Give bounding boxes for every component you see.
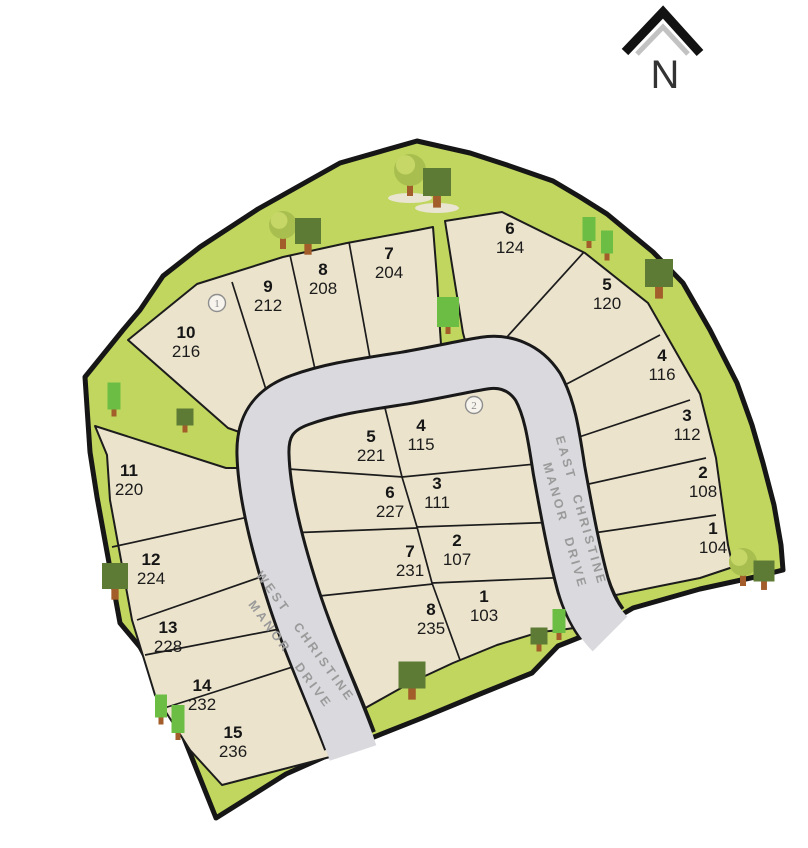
lot-address: 120 [593,294,621,313]
lot-address: 235 [417,619,445,638]
lot-address: 221 [357,446,385,465]
map-marker: 2 [466,397,483,414]
lot-address: 236 [219,742,247,761]
lot-address: 115 [407,435,434,454]
lot-number: 13 [159,618,178,637]
lot-address: 220 [115,480,143,499]
lot-number: 6 [505,219,514,238]
lot-number: 1 [708,519,717,538]
lot-address: 103 [470,606,498,625]
tree-icon [155,695,167,725]
map-marker-number: 1 [214,298,220,310]
lot-number: 3 [682,406,691,425]
lot-address: 228 [154,637,182,656]
lot-number: 12 [142,550,161,569]
lot-address: 227 [376,502,404,521]
lot-address: 107 [443,550,471,569]
lot-address: 204 [375,263,403,282]
lot-number: 4 [416,416,426,435]
map-marker: 1 [209,295,226,312]
lot-address: 208 [309,279,337,298]
lot-number: 1 [479,587,488,606]
north-arrow-outer-chevron-icon [625,12,700,53]
lot-number: 7 [384,244,393,263]
lot-number: 14 [193,676,212,695]
lot-number: 5 [366,427,375,446]
lot-number: 8 [426,600,435,619]
plat-map-page: WEST CHRISTINE MANOR DRIVE EAST CHRISTIN… [0,0,808,848]
map-marker-number: 2 [471,400,477,412]
lot-address: 231 [396,561,424,580]
lot-number: 6 [385,483,394,502]
lot-number: 4 [657,346,667,365]
lot-number: 2 [698,463,707,482]
lot-number: 3 [432,474,441,493]
lot-number: 9 [263,277,272,296]
lot-address: 224 [137,569,165,588]
lot-address: 212 [254,296,282,315]
lot-number: 11 [120,461,138,480]
lot-address: 112 [673,425,700,444]
lot-address: 232 [188,695,216,714]
lot-address: 216 [172,342,200,361]
tree-icon [754,561,775,590]
subdivision-plat-map: WEST CHRISTINE MANOR DRIVE EAST CHRISTIN… [0,0,808,848]
lot-number: 7 [405,542,414,561]
north-arrow: N [625,12,700,97]
lot-number: 2 [452,531,461,550]
lot-number: 5 [602,275,611,294]
lot-address: 111 [424,493,450,512]
lot-address: 108 [689,482,717,501]
lot-address: 104 [699,538,727,557]
lot-number: 15 [224,723,243,742]
north-arrow-label: N [651,53,680,97]
lot-number: 10 [177,323,196,342]
lot-address: 124 [496,238,524,257]
lot-address: 116 [648,365,675,384]
lot-number: 8 [318,260,327,279]
